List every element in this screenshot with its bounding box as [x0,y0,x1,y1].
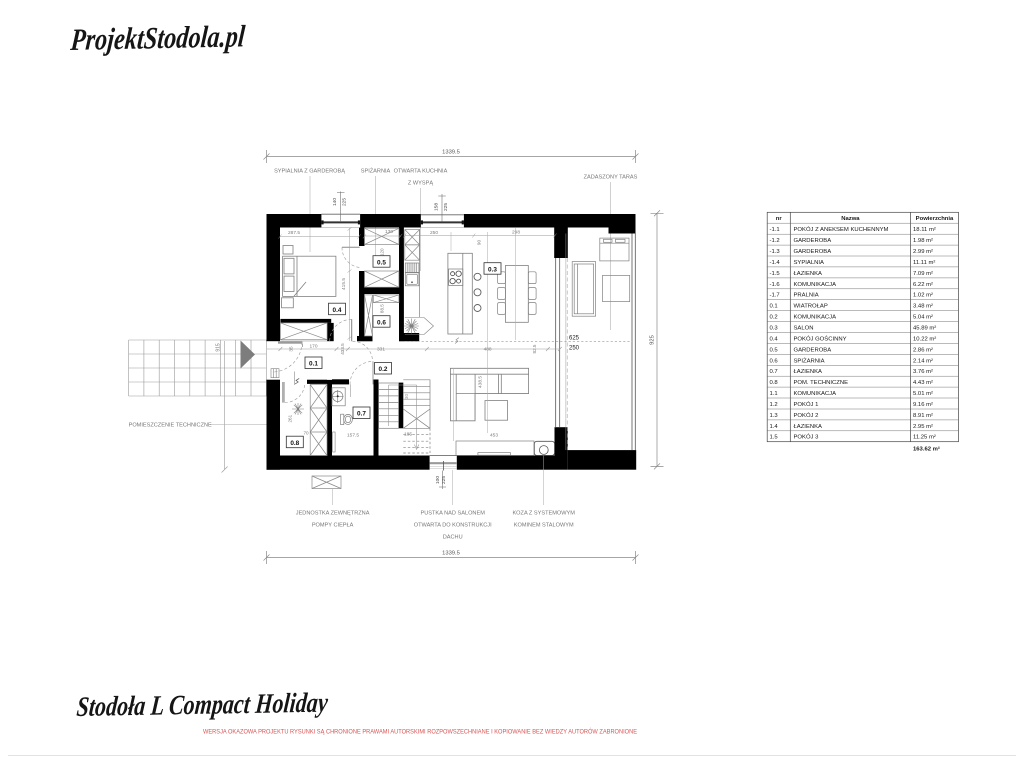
svg-text:18.11 m²: 18.11 m² [913,227,936,233]
svg-text:120: 120 [380,248,385,256]
svg-text:8.91 m²: 8.91 m² [913,413,933,419]
svg-text:GARDEROBA: GARDEROBA [794,249,832,255]
svg-text:2.14 m²: 2.14 m² [913,358,933,364]
svg-text:0.1: 0.1 [309,361,318,368]
svg-text:250: 250 [569,346,580,352]
svg-text:35: 35 [288,346,293,352]
svg-text:ŁAZIENKA: ŁAZIENKA [794,369,823,375]
svg-text:0.3: 0.3 [488,266,497,273]
svg-text:3.48 m²: 3.48 m² [913,304,933,310]
svg-text:1339.5: 1339.5 [442,150,460,156]
svg-text:11.11 m²: 11.11 m² [913,260,935,266]
svg-text:-1.1: -1.1 [770,227,780,233]
svg-text:0.4: 0.4 [770,336,779,342]
svg-text:1.3: 1.3 [770,413,779,419]
svg-text:11.25 m²: 11.25 m² [913,435,936,441]
svg-text:185: 185 [404,432,412,438]
svg-text:GARDEROBA: GARDEROBA [794,347,832,353]
svg-text:433.5: 433.5 [340,343,345,355]
svg-text:625: 625 [569,336,580,342]
svg-text:1.98 m²: 1.98 m² [913,238,933,244]
svg-text:-1.7: -1.7 [770,293,780,299]
svg-text:WERSJA OKAZOWA PROJEKTU RYSUNK: WERSJA OKAZOWA PROJEKTU RYSUNKI SĄ CHRON… [203,727,637,736]
svg-text:POKÓJ GOŚCINNY: POKÓJ GOŚCINNY [794,334,847,342]
svg-text:OTWARTA KUCHNIA: OTWARTA KUCHNIA [394,169,448,175]
svg-text:163.62 m²: 163.62 m² [913,446,940,453]
svg-text:82.5: 82.5 [532,344,537,353]
svg-text:10.22 m²: 10.22 m² [913,336,936,342]
svg-text:KOMUNIKACJA: KOMUNIKACJA [794,282,837,288]
svg-text:6.22 m²: 6.22 m² [913,282,933,288]
svg-text:Stodoła L Compact Holiday: Stodoła L Compact Holiday [75,688,329,723]
svg-text:7.09 m²: 7.09 m² [913,271,933,277]
svg-text:250: 250 [430,230,438,236]
svg-text:1.4: 1.4 [770,424,779,430]
svg-text:0.3: 0.3 [770,326,779,332]
svg-text:225: 225 [341,198,347,206]
svg-text:GARDEROBA: GARDEROBA [794,238,832,244]
svg-text:ŁAZIENKA: ŁAZIENKA [794,271,823,277]
svg-text:0.5: 0.5 [770,347,779,353]
svg-text:KOMUNIKACJA: KOMUNIKACJA [794,315,837,321]
svg-text:70: 70 [303,431,309,436]
svg-text:5.01 m²: 5.01 m² [913,391,933,397]
svg-text:POMPY CIEPŁA: POMPY CIEPŁA [312,523,354,529]
svg-text:331: 331 [377,347,385,353]
svg-text:nr: nr [776,216,783,222]
svg-text:287.5: 287.5 [288,230,300,236]
svg-text:POM. TECHNICZNE: POM. TECHNICZNE [794,380,849,386]
svg-text:1.2: 1.2 [770,402,778,408]
svg-text:30: 30 [404,394,409,400]
svg-text:453: 453 [490,433,498,439]
svg-text:2.99 m²: 2.99 m² [913,249,933,255]
svg-text:KOZA Z SYSTEMOWYM: KOZA Z SYSTEMOWYM [512,511,575,517]
svg-text:SYPIALNIA: SYPIALNIA [794,260,825,266]
svg-text:157.5: 157.5 [347,432,359,438]
svg-text:45.89 m²: 45.89 m² [913,326,936,332]
svg-text:1.1: 1.1 [770,391,778,397]
svg-text:0.6: 0.6 [377,319,386,326]
svg-text:130: 130 [385,229,393,235]
svg-text:0.2: 0.2 [770,315,778,321]
svg-text:POKÓJ 3: POKÓJ 3 [794,434,820,441]
svg-text:PUSTKA NAD SALONEM: PUSTKA NAD SALONEM [421,511,486,517]
svg-text:JEDNOSTKA ZEWNĘTRZNA: JEDNOSTKA ZEWNĘTRZNA [296,511,370,517]
svg-text:PRALNIA: PRALNIA [794,293,819,299]
svg-text:-1.4: -1.4 [770,260,781,266]
svg-text:ProjektStodola.pl: ProjektStodola.pl [69,18,247,57]
svg-text:298: 298 [512,230,520,236]
svg-text:DACHU: DACHU [443,535,463,541]
svg-text:1.5: 1.5 [770,435,779,441]
svg-text:KOMINEM STALOWYM: KOMINEM STALOWYM [514,523,574,529]
svg-text:POKÓJ 1: POKÓJ 1 [794,401,819,408]
svg-text:140: 140 [332,198,338,206]
svg-text:ZADASZONY TARAS: ZADASZONY TARAS [584,175,638,181]
svg-text:Nazwa: Nazwa [841,216,860,222]
svg-text:-1.5: -1.5 [770,271,781,277]
svg-text:0.4: 0.4 [333,307,342,314]
svg-text:ŁAZIENKA: ŁAZIENKA [794,424,823,430]
svg-text:0.5: 0.5 [377,259,386,266]
svg-text:Powierzchnia: Powierzchnia [916,216,954,222]
svg-text:-1.2: -1.2 [770,238,780,244]
svg-text:1.02 m²: 1.02 m² [913,293,933,299]
svg-text:POMIESZCZENIE TECHNICZNE: POMIESZCZENIE TECHNICZNE [129,423,212,429]
svg-text:90: 90 [477,240,482,246]
svg-text:2.86 m²: 2.86 m² [913,347,933,353]
svg-text:0.6: 0.6 [770,358,779,364]
svg-text:261: 261 [288,414,293,422]
svg-text:915: 915 [216,343,222,352]
svg-text:0.7: 0.7 [770,369,778,375]
svg-text:225: 225 [443,203,449,211]
svg-text:POKÓJ Z ANEKSEM KUCHENNYM: POKÓJ Z ANEKSEM KUCHENNYM [794,226,889,233]
svg-text:225: 225 [441,476,447,484]
svg-text:SPIŻARNIA: SPIŻARNIA [361,168,391,175]
svg-text:88.5: 88.5 [380,304,385,313]
svg-text:925: 925 [650,335,656,345]
svg-text:OTWARTA DO KONSTRUKCJI: OTWARTA DO KONSTRUKCJI [414,523,492,529]
svg-text:KOMUNIKACJA: KOMUNIKACJA [794,391,837,397]
svg-text:-1.6: -1.6 [770,282,781,288]
svg-text:2.95 m²: 2.95 m² [913,424,933,430]
svg-text:Z WYSPĄ: Z WYSPĄ [408,181,433,187]
svg-text:9.16 m²: 9.16 m² [913,402,933,408]
svg-text:0.7: 0.7 [357,411,366,418]
svg-text:POKÓJ 2: POKÓJ 2 [794,412,819,419]
svg-text:0.2: 0.2 [379,366,388,373]
svg-text:1339.5: 1339.5 [442,551,460,557]
svg-text:0.8: 0.8 [770,380,779,386]
svg-text:0.8: 0.8 [290,440,299,447]
svg-text:170: 170 [309,344,317,350]
svg-text:SYPIALNIA Z GARDEROBĄ: SYPIALNIA Z GARDEROBĄ [274,169,345,175]
svg-text:100: 100 [435,476,441,484]
svg-text:4.43 m²: 4.43 m² [913,380,933,386]
svg-text:SALON: SALON [794,326,814,332]
svg-text:415.5: 415.5 [341,278,347,290]
svg-text:158: 158 [433,203,439,211]
svg-text:438.5: 438.5 [478,376,484,388]
svg-text:WIATROŁAP: WIATROŁAP [794,304,828,310]
svg-text:SPIŻARNIA: SPIŻARNIA [794,357,825,364]
svg-text:5.04 m²: 5.04 m² [913,315,933,321]
svg-text:3.76 m²: 3.76 m² [913,369,933,375]
svg-text:0.1: 0.1 [770,304,778,310]
svg-text:-1.3: -1.3 [770,249,781,255]
